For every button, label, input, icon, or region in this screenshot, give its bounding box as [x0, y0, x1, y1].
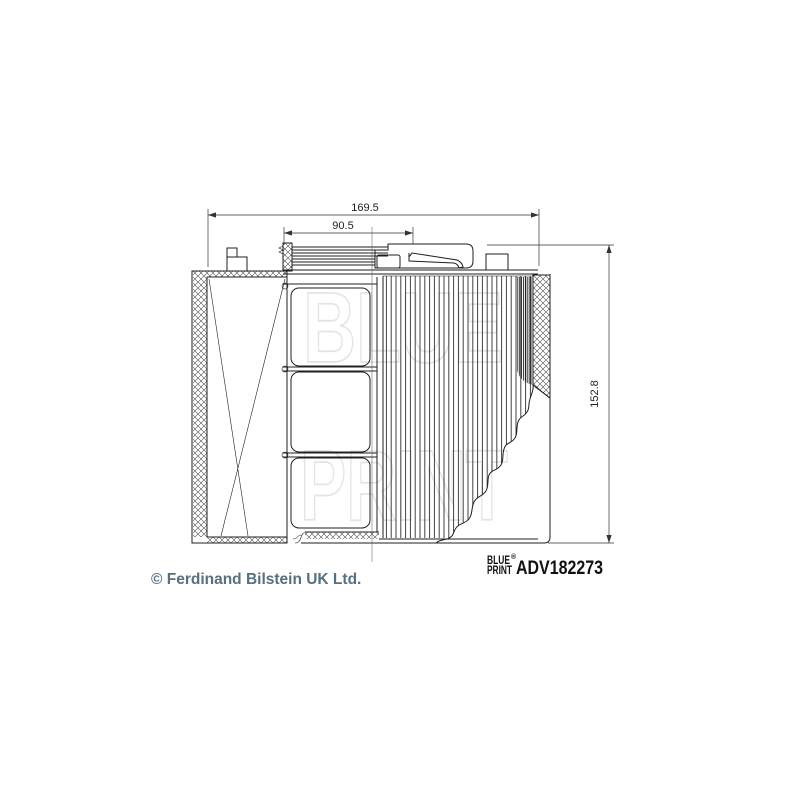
top-cap-section — [279, 243, 508, 271]
dimension-width-partial-label: 90.5 — [332, 220, 353, 232]
drawing-linework — [192, 209, 614, 562]
laminated-seal — [292, 247, 388, 265]
cap-tab — [486, 254, 508, 270]
cap-housing — [375, 244, 473, 268]
copyright-text: © Ferdinand Bilstein UK Ltd. — [151, 571, 361, 588]
dimension-height-label: 152.8 — [589, 380, 601, 408]
cap-clip — [409, 253, 463, 268]
part-number: ADV182273 — [516, 558, 603, 579]
footer: © Ferdinand Bilstein UK Ltd. BLUE PRINT … — [151, 553, 603, 588]
filter-technical-drawing: BLUE PRINT — [0, 0, 800, 800]
blueprint-logo: BLUE PRINT ® — [487, 553, 517, 577]
mounting-tab — [227, 248, 247, 271]
dimension-width-total-label: 169.5 — [351, 202, 379, 214]
logo-line2: PRINT — [487, 563, 512, 577]
pleat-dense-edge — [517, 277, 533, 385]
media-end-seal — [533, 275, 550, 398]
dimension-width-total — [208, 209, 539, 267]
screenshot-canvas: BLUE PRINT — [0, 0, 800, 800]
left-duct-section — [192, 248, 287, 543]
pleated-media — [383, 276, 533, 538]
